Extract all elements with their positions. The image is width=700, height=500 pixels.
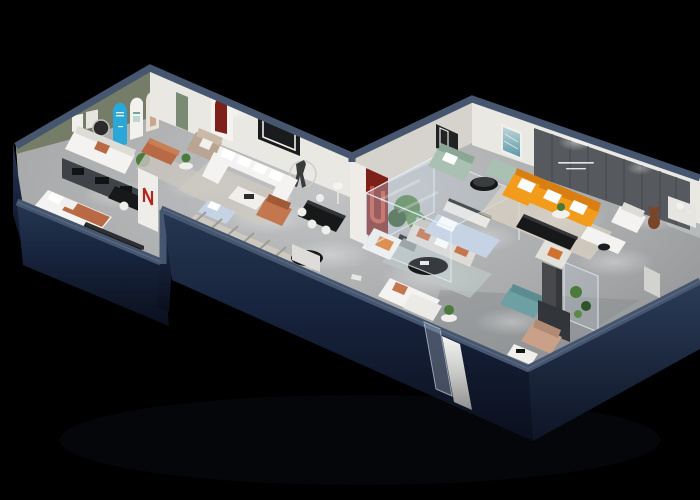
cabinet-plant-2 xyxy=(581,301,591,311)
floor-lamp-shade xyxy=(333,183,343,190)
black-side-table xyxy=(598,244,610,251)
cabinet-plant-1 xyxy=(570,286,582,298)
table-tray xyxy=(244,194,254,199)
showroom-render: Dollhouse cutaway aerial view of a furni… xyxy=(0,0,700,500)
plant-side-table xyxy=(441,314,457,322)
white-pillar xyxy=(350,160,368,246)
desk-chair xyxy=(120,202,129,211)
table-plant xyxy=(182,154,191,163)
round-side-table xyxy=(179,163,193,170)
arch-menu-text-marks xyxy=(133,112,140,114)
coffee-table-top xyxy=(473,177,495,187)
bw-table-black-item xyxy=(516,349,525,353)
teddy-bear-figure xyxy=(648,206,660,229)
bath-fixture xyxy=(677,203,684,210)
bath-fixture-2 xyxy=(686,209,692,215)
green-door xyxy=(176,92,188,131)
arch-menu-block xyxy=(133,116,140,122)
cyan-arch-poster xyxy=(113,103,127,148)
round-table-plant xyxy=(557,203,565,211)
cabinet-plant-3 xyxy=(574,310,582,318)
floorplan-svg: Dollhouse cutaway aerial view of a furni… xyxy=(0,0,700,500)
side-table-plant xyxy=(444,305,454,315)
poster-pillar xyxy=(138,168,158,232)
